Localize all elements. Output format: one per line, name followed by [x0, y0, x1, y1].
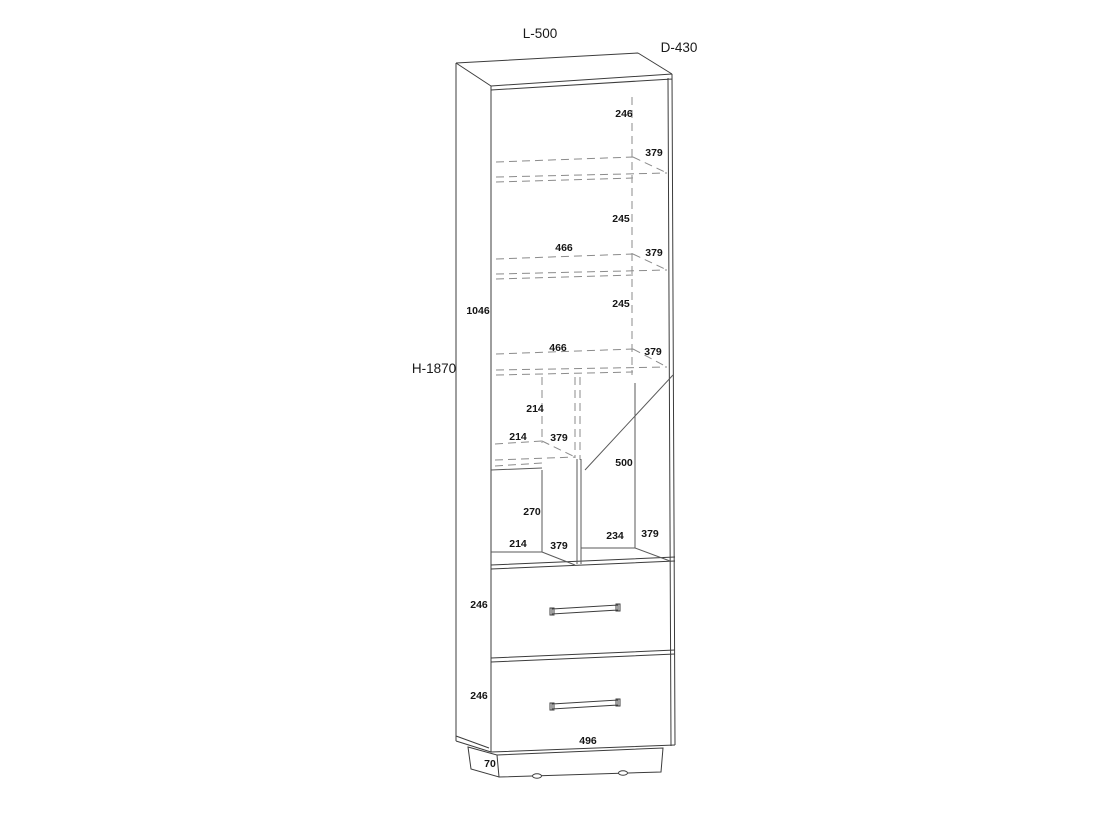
dim-gap-shelf1-shelf2: 245: [612, 213, 630, 225]
dim-upper-niche-height: 214: [526, 403, 544, 415]
hidden-shelf-lines: [495, 97, 667, 466]
dim-plinth-height: 70: [484, 758, 496, 770]
drawer-section-lines: [491, 557, 675, 752]
dim-cubby-width: 214: [509, 538, 527, 550]
dim-cubby-depth: 379: [550, 540, 568, 552]
dim-right-niche-width: 234: [606, 530, 624, 542]
dim-shelf3-depth: 379: [644, 346, 662, 358]
cabinet-drawing-canvas: L-500 D-430 H-1870 1046 246 379 245 466 …: [0, 0, 1108, 831]
plinth-foot-right: [619, 771, 628, 775]
dim-drawer-width: 496: [579, 735, 597, 747]
dim-shelf2-depth: 379: [645, 247, 663, 259]
dim-door-diagonal: 500: [615, 457, 633, 469]
dim-shelf3-width: 466: [549, 342, 567, 354]
dim-upper-niche-width: 214: [509, 431, 527, 443]
drawer1-handle: [550, 604, 620, 615]
dim-gap-shelf2-shelf3: 245: [612, 298, 630, 310]
dim-overall-width: L-500: [523, 26, 558, 41]
dim-upper-section-height: 1046: [466, 305, 490, 317]
dim-cubby-height: 270: [523, 506, 541, 518]
furniture-technical-drawing: L-500 D-430 H-1870 1046 246 379 245 466 …: [0, 0, 1108, 831]
dim-drawer1-height: 246: [470, 599, 488, 611]
plinth-foot-left: [533, 774, 542, 778]
dim-right-niche-depth: 379: [641, 528, 659, 540]
dim-drawer2-height: 246: [470, 690, 488, 702]
drawer2-handle: [550, 699, 620, 710]
dim-upper-niche-depth: 379: [550, 432, 568, 444]
dim-overall-depth: D-430: [661, 40, 698, 55]
dim-overall-height: H-1870: [412, 361, 456, 376]
cabinet-carcass-outline: [456, 53, 675, 752]
dim-shelf1-depth: 379: [645, 147, 663, 159]
dim-shelf2-width: 466: [555, 242, 573, 254]
dim-top-gap: 246: [615, 108, 633, 120]
